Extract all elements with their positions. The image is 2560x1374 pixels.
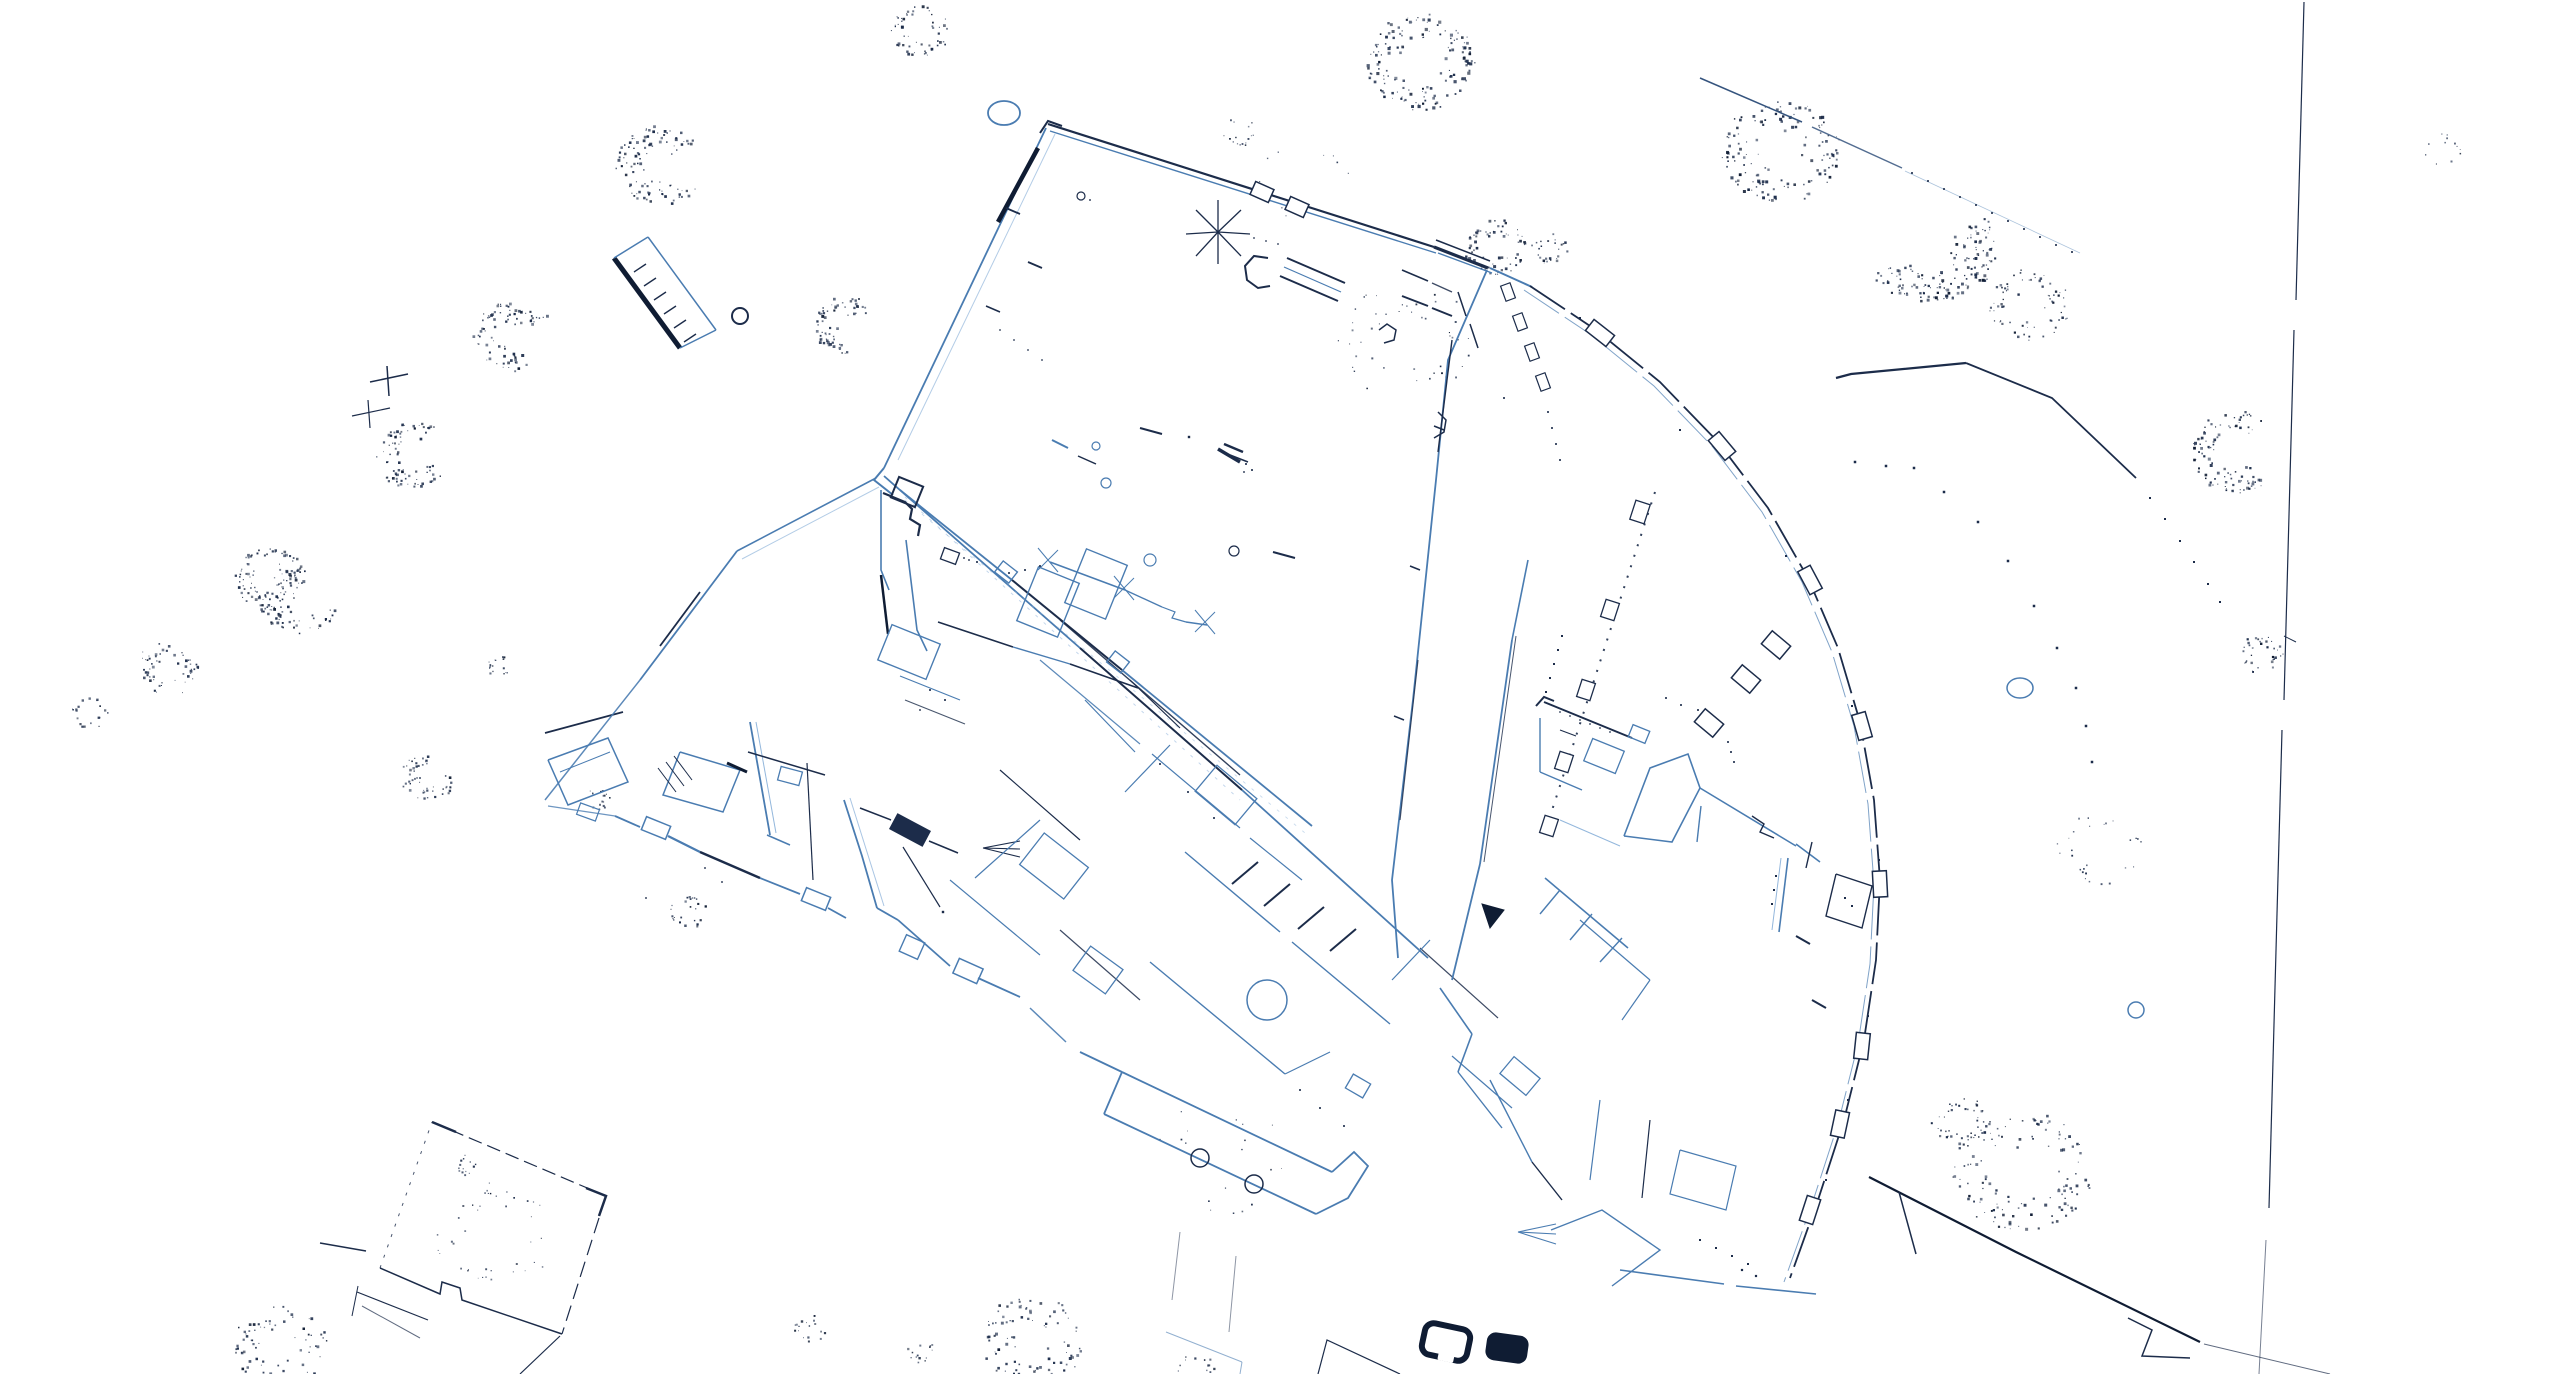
right-building [1440, 560, 1872, 1294]
central-wing [1150, 852, 1556, 1332]
site-scan-viewport [0, 0, 2560, 1374]
field-plot [320, 366, 606, 1374]
cars [1420, 1322, 1530, 1365]
landmarks [614, 2, 2330, 1374]
left-building [545, 477, 1368, 1214]
site-scan-image [0, 0, 2560, 1374]
vegetation-layer [72, 5, 2461, 1374]
colonnade-arc [1524, 286, 1888, 1282]
